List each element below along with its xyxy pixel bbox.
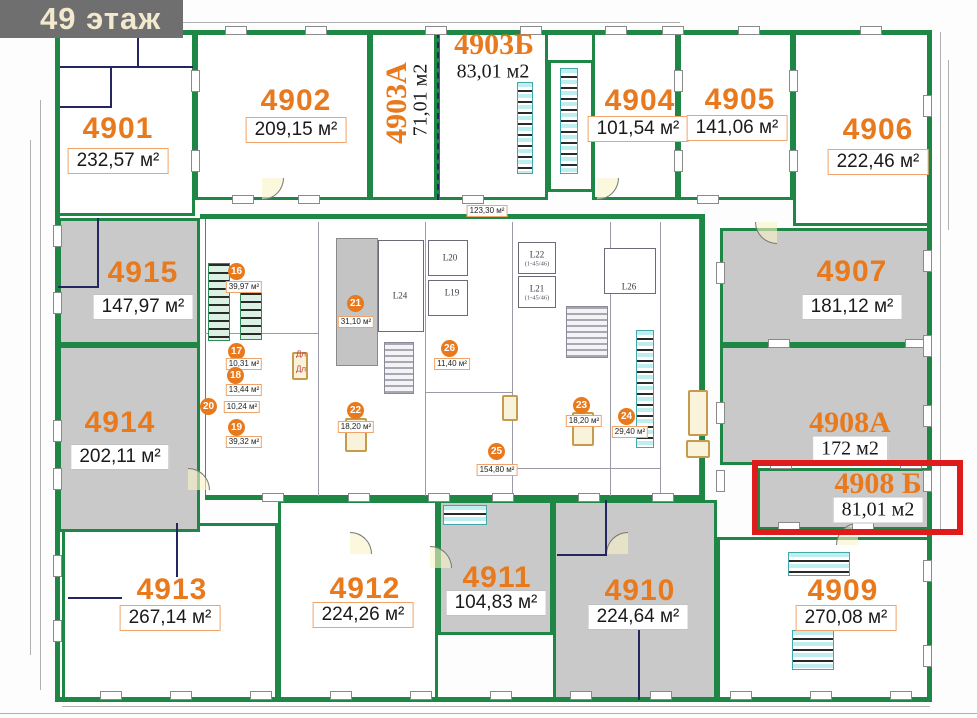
room-number-badge: 18 [227,367,244,384]
window-tick [462,195,484,204]
window-tick [410,691,432,700]
window-tick [262,493,284,502]
window-tick [100,691,122,700]
window-tick [305,26,327,35]
window-tick [789,70,798,92]
window-tick [53,420,62,442]
unit-number: 4909 [808,574,879,608]
door-annotation: Дл [296,350,306,359]
window-tick [425,26,447,35]
sanitary-fixtures [443,505,487,525]
unit-area-label: 267,14 м² [120,605,221,631]
window-tick [674,150,683,172]
window-tick [697,195,719,204]
unit-number: 4903Б [454,28,534,62]
facade-line [940,32,941,532]
staircase [566,306,608,358]
interior-wall [557,554,607,556]
room-number-badge: 24 [618,408,635,425]
window-tick [716,470,725,492]
core-wall-line [425,392,512,393]
furniture [688,390,708,436]
unit-area-label: 222,46 м² [828,149,929,175]
room-number-badge: 25 [488,443,505,460]
unit-number: 4902 [261,84,332,118]
window-tick [53,620,62,642]
window-tick [298,195,320,204]
window-tick [716,402,725,424]
window-tick [923,405,932,427]
furniture [686,440,710,458]
facade-line [40,100,41,690]
window-tick [652,493,674,502]
unit-area-label: 83,01 м2 [457,61,530,84]
window-tick [923,250,932,272]
window-tick [923,560,932,582]
elevator-shaft [428,280,468,316]
room-number-badge: 23 [573,397,590,414]
unit-area-label: 104,83 м² [446,590,547,616]
interior-wall [58,286,98,288]
interior-wall [605,500,607,556]
unit-area-label: 209,15 м² [246,117,347,143]
window-tick [53,468,62,490]
elevator-label: L22 [530,251,545,260]
window-tick [191,150,200,172]
elevator-label: L21 [530,285,545,294]
unit-number: 4914 [85,406,156,440]
core-wall-line [425,222,426,496]
window-tick [923,95,932,117]
window-tick [578,493,600,502]
dashed-wall [437,32,439,200]
window-tick [768,339,790,348]
room-number-badge: 19 [228,419,245,436]
unit-number: 4904 [605,84,676,118]
window-tick [53,292,62,314]
furniture [502,395,518,421]
unit-area-label: 181,12 м² [802,294,903,320]
window-tick [53,225,62,247]
window-tick [789,150,798,172]
room-area-chip: 10,24 м² [224,401,260,413]
interior-wall [110,66,112,106]
window-tick [810,691,832,700]
window-tick [890,691,912,700]
window-tick [53,555,62,577]
window-tick [330,691,352,700]
window-tick [250,691,272,700]
door-annotation: Дл [296,365,306,374]
unit-area-label: 224,26 м² [313,602,414,628]
room-area-chip: 11,40 м² [434,358,470,370]
interior-wall [60,106,112,108]
window-tick [232,195,254,204]
window-tick [662,26,684,35]
window-tick [490,691,512,700]
window-tick [923,335,932,357]
interior-wall [176,523,178,577]
window-tick [428,493,450,502]
room-number-badge: 21 [347,295,364,312]
unit-number: 4912 [330,572,401,606]
window-tick [570,691,592,700]
facade-line [30,140,31,655]
sanitary-fixtures [788,552,850,576]
unit-number: 4910 [605,574,676,608]
sanitary-fixtures [792,630,834,670]
window-tick [170,691,192,700]
unit-number: 4905 [705,83,776,117]
interior-wall [97,218,99,288]
unit-area-label: 172 м2 [812,436,888,463]
unit-area-label: 202,11 м² [70,444,169,470]
sanitary-fixtures [560,68,578,174]
window-tick [650,691,672,700]
window-tick [348,493,370,502]
sanitary-fixtures [517,82,533,174]
core-wall-line [512,222,513,496]
window-tick [860,26,882,35]
elevator-label: L19 [445,289,460,298]
facade-line [62,706,930,707]
utility-fixtures [240,292,262,340]
window-tick [225,26,247,35]
facade-line [948,60,949,230]
window-tick [716,262,725,284]
room-area-chip: 39,97 м² [226,281,262,293]
floor-plan: 49 этаж 4901232,57 м²4902209,15 м²4903А7… [0,0,977,718]
unit-number: 4906 [843,113,914,147]
interior-wall [137,34,139,68]
elevator-shaft [378,240,424,332]
room-area-chip: 39,32 м² [226,436,262,448]
unit-area-label: 141,06 м² [687,115,788,141]
room-area-chip: 18,20 м² [566,415,602,427]
window-tick [605,26,627,35]
room-area-chip: 31,10 м² [338,316,374,328]
unit-area-label: 147,97 м² [93,294,194,320]
unit-number: 4907 [817,255,888,289]
window-tick [492,493,514,502]
unit-number: 4915 [108,256,179,290]
unit-number: 4913 [137,573,208,607]
room-number-badge: 26 [441,340,458,357]
elevator-sublabel: (1-45/46) [525,295,550,302]
unit-area-label: 270,08 м² [796,605,897,631]
room-area-chip: 154,80 м² [477,464,518,476]
room-area-chip: 13,44 м² [226,384,262,396]
facade-line [0,713,977,714]
room-number-badge: 20 [200,398,217,415]
window-tick [191,70,200,92]
core-wall-line [512,468,660,469]
room-number-badge: 16 [228,263,245,280]
room-area-chip: 18,20 м² [338,421,374,433]
interior-wall [60,66,193,68]
unit-area-label: 224,64 м² [588,604,689,630]
interior-wall [68,597,122,599]
core-wall-line [318,222,319,496]
unit-area-label: 71,01 м2 [410,64,433,137]
unit-area-label: 232,57 м² [68,148,169,174]
elevator-label: L20 [443,254,458,263]
elevator-label: L26 [622,283,637,292]
corridor-area-chip: 123,30 м² [467,205,508,217]
floor-title: 49 этаж [40,0,161,38]
window-tick [730,691,752,700]
wall-green [200,214,705,219]
staircase [384,342,414,394]
floor-header-badge: 49 этаж [0,0,183,38]
window-tick [923,645,932,667]
elevator-sublabel: (1-45/46) [525,261,550,268]
room-number-badge: 22 [347,402,364,419]
core-wall-line [660,222,661,496]
highlight-box-4908b [752,460,963,535]
unit-area-label: 101,54 м² [588,116,689,142]
window-tick [738,26,760,35]
elevator-label: L24 [393,292,408,301]
unit-number: 4901 [83,112,154,146]
utility-fixtures [208,263,230,341]
room-area-chip: 29,40 м² [612,426,648,438]
